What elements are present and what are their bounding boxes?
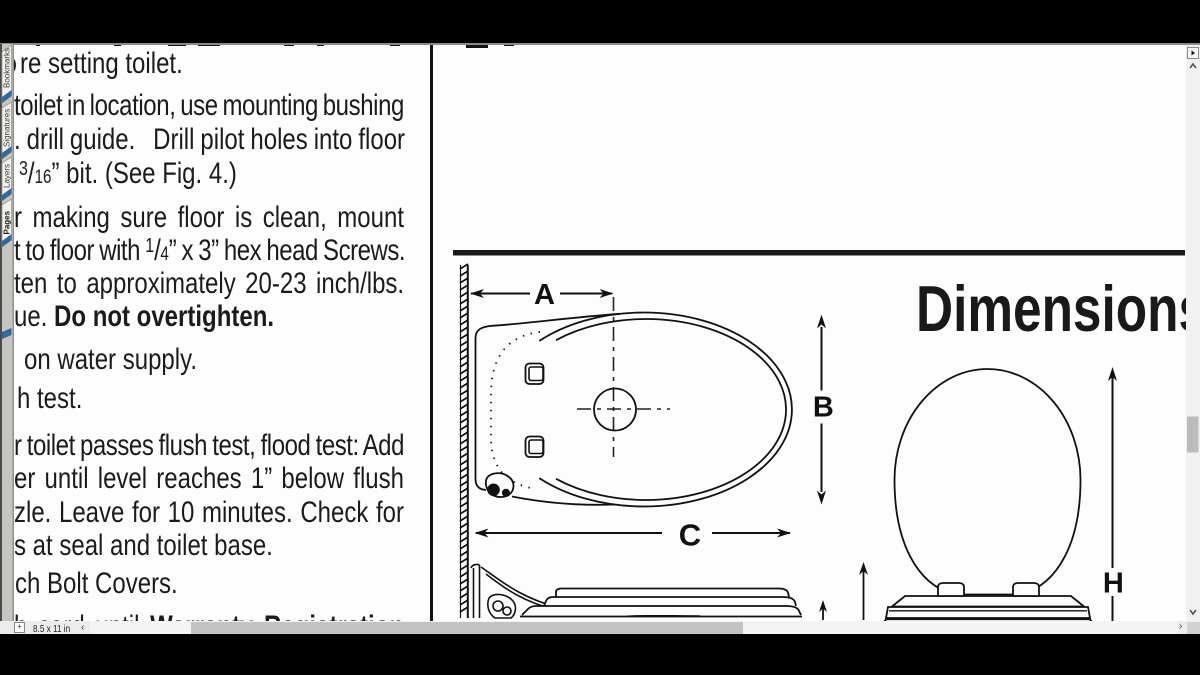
svg-text:B: B [813,392,834,424]
svg-text:Pages: Pages [3,210,12,234]
svg-text:H: H [1103,568,1124,600]
svg-text:Signatures: Signatures [3,109,12,147]
svg-text:A: A [534,279,555,311]
svg-text:C: C [679,518,701,553]
svg-text:Layers: Layers [3,164,12,188]
svg-text:Bookmarks: Bookmarks [3,48,12,88]
